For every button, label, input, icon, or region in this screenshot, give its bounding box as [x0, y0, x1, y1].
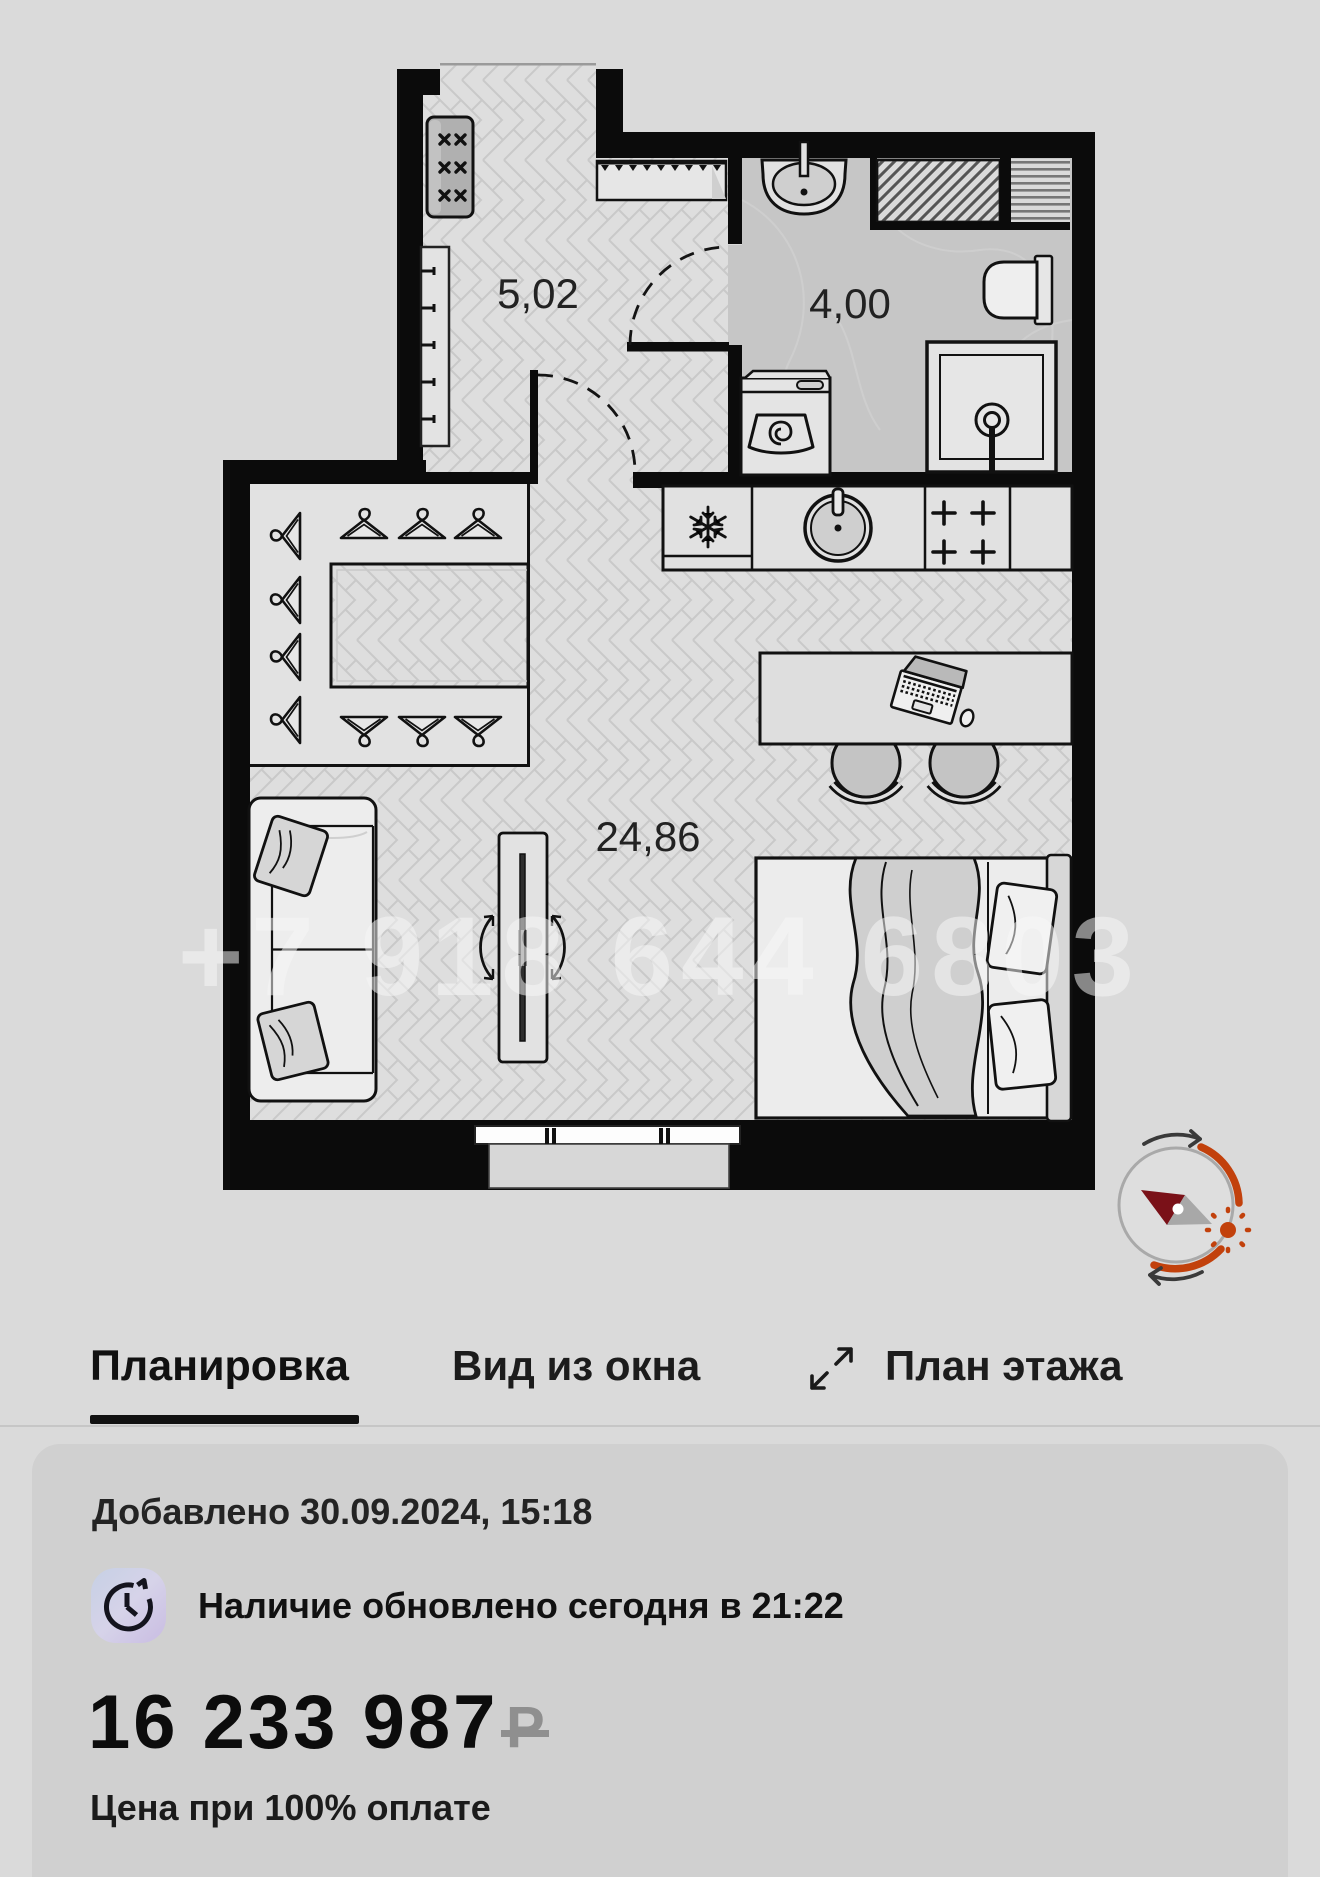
svg-text:План этажа: План этажа [885, 1342, 1123, 1389]
svg-text:5,02: 5,02 [497, 270, 579, 317]
svg-text:16 233 987: 16 233 987 [88, 1680, 498, 1765]
svg-text:Добавлено 30.09.2024, 15:18: Добавлено 30.09.2024, 15:18 [92, 1491, 592, 1532]
svg-text:Р: Р [506, 1695, 545, 1760]
svg-text:Наличие обновлено сегодня в 21: Наличие обновлено сегодня в 21:22 [198, 1585, 844, 1626]
svg-text:+7 918 644 6803: +7 918 644 6803 [178, 894, 1142, 1019]
svg-text:24,86: 24,86 [595, 813, 700, 860]
svg-text:Цена при 100% оплате: Цена при 100% оплате [90, 1787, 491, 1828]
svg-text:4,00: 4,00 [809, 280, 891, 327]
svg-text:Планировка: Планировка [90, 1342, 350, 1390]
svg-text:Вид из окна: Вид из окна [452, 1342, 701, 1389]
